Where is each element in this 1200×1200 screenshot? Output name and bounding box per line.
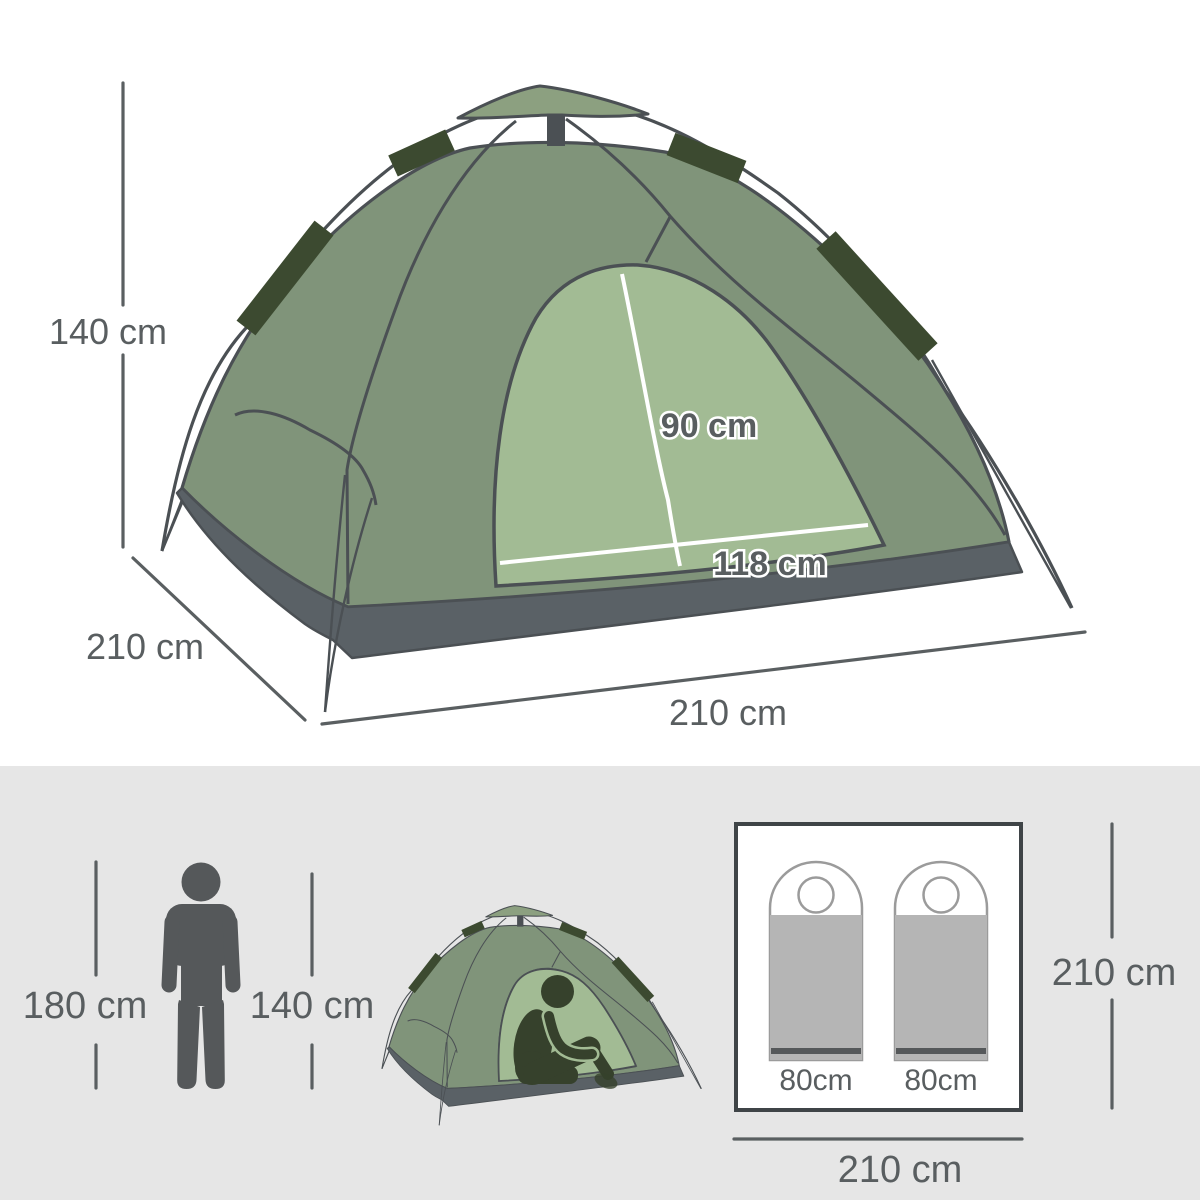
svg-text:210 cm: 210 cm <box>838 1149 963 1191</box>
svg-text:140 cm: 140 cm <box>49 311 167 352</box>
svg-text:210 cm: 210 cm <box>86 626 204 667</box>
svg-text:90 cm: 90 cm <box>661 407 757 445</box>
svg-text:210 cm: 210 cm <box>669 692 787 733</box>
svg-text:210 cm: 210 cm <box>1052 952 1177 994</box>
svg-text:118 cm: 118 cm <box>713 545 826 583</box>
svg-text:140 cm: 140 cm <box>250 985 375 1027</box>
svg-text:80cm: 80cm <box>904 1064 977 1097</box>
svg-text:180 cm: 180 cm <box>23 985 148 1027</box>
svg-text:80cm: 80cm <box>779 1064 852 1097</box>
